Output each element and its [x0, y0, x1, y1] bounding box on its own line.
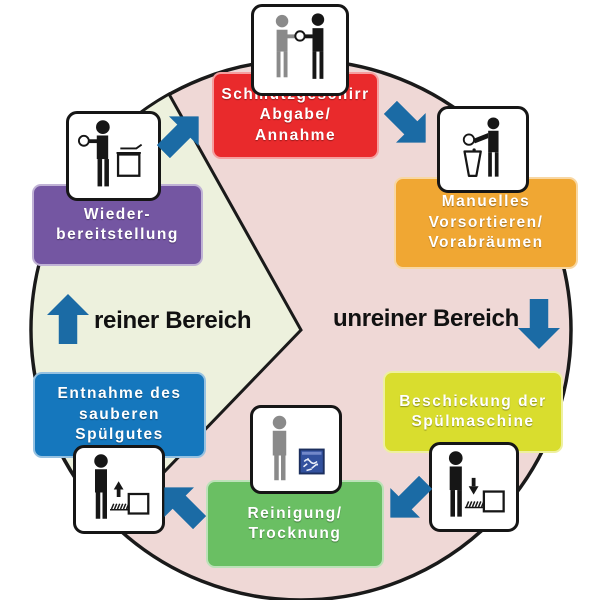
dishwasher-running-icon	[250, 405, 342, 494]
stage-label-line: sauberen	[79, 405, 160, 425]
stage-label-line: Wieder-	[84, 205, 151, 225]
restock-shelf-icon	[66, 111, 161, 201]
load-rack-icon	[429, 442, 519, 532]
unload-rack-icon	[73, 445, 165, 534]
stage-label-line: Beschickung der	[399, 392, 546, 412]
stage-label-line: Entnahme des	[58, 384, 182, 404]
stage-label-line: bereitstellung	[56, 225, 179, 245]
scrape-into-bin-icon	[437, 106, 529, 193]
stage-label-line: Manuelles	[442, 192, 530, 212]
stage-label-line: Vorabräumen	[428, 233, 543, 253]
stage-label-line: Spülgutes	[75, 425, 163, 445]
stage-label-line: Trocknung	[249, 524, 342, 544]
stage-box-beschickung-spuelmaschine: Beschickung der Spülmaschine	[383, 371, 563, 453]
unclean-area-label: unreiner Bereich	[333, 305, 519, 333]
clean-area-label: reiner Bereich	[94, 307, 251, 335]
dish-handover-icon	[251, 4, 349, 96]
stage-label-line: Abgabe/	[260, 105, 332, 125]
stage-label-line: Vorsortieren/	[429, 213, 544, 233]
stage-label-line: Spülmaschine	[411, 412, 534, 432]
stage-label-line: Reinigung/	[247, 504, 342, 524]
stage-label-line: Annahme	[255, 126, 336, 146]
